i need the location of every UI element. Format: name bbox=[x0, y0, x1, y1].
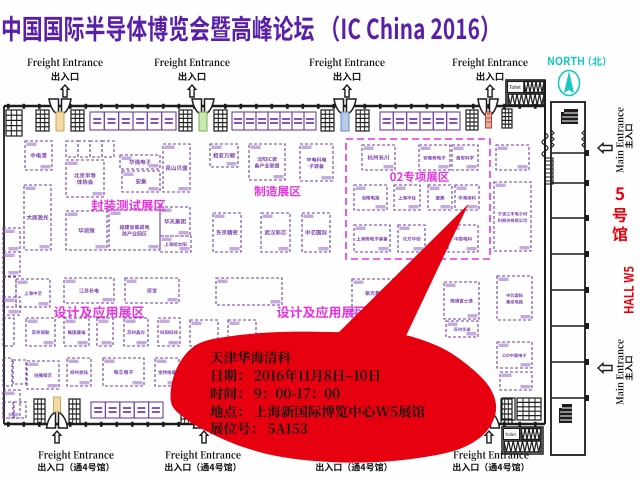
svg-text:Toilet: Toilet bbox=[505, 432, 516, 437]
svg-text:Toilet: Toilet bbox=[509, 85, 521, 91]
